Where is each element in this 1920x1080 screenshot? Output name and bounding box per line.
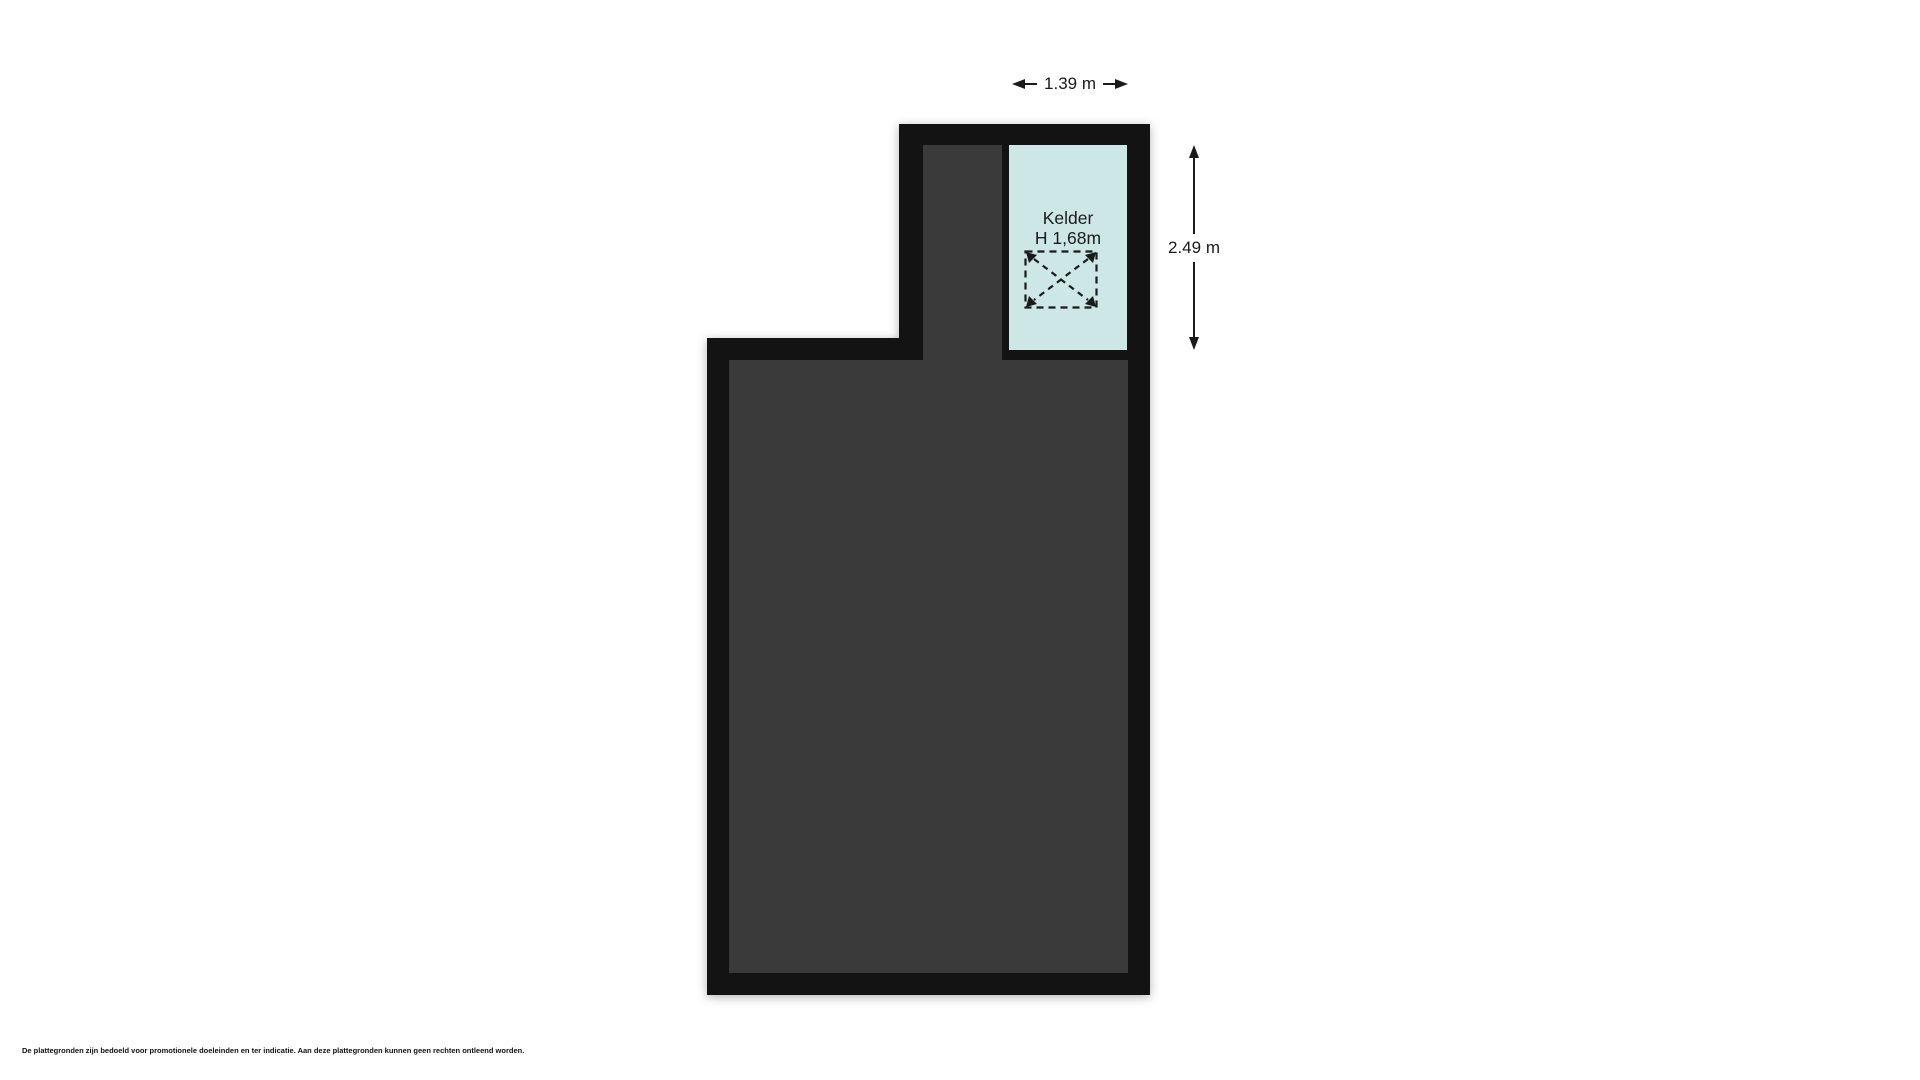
room-label-group: Kelder H 1,68m <box>1009 208 1127 248</box>
dimension-height-label: 2.49 m <box>1165 234 1223 262</box>
arrow-up-icon <box>1189 145 1199 158</box>
floorplan-canvas: Kelder H 1,68m 1.39 m 2.49 m De plattegr <box>0 0 1920 1080</box>
dimension-width-label: 1.39 m <box>1037 76 1103 92</box>
kelder-room: Kelder H 1,68m <box>1009 145 1127 350</box>
dimension-width-top: 1.39 m <box>1012 76 1128 92</box>
dimension-line-right <box>1103 83 1115 85</box>
arrow-down-icon <box>1189 337 1199 350</box>
arrow-right-icon <box>1115 79 1128 89</box>
upper-interior-strip <box>923 145 1002 365</box>
arrow-left-icon <box>1012 79 1025 89</box>
floorplan: Kelder H 1,68m <box>0 0 1920 1080</box>
dimension-height-right: 2.49 m <box>1184 145 1204 350</box>
room-height-label: H 1,68m <box>1009 228 1127 248</box>
void-cross-icon <box>1024 250 1098 309</box>
main-interior-area <box>729 360 1128 973</box>
room-name-label: Kelder <box>1009 208 1127 228</box>
disclaimer-text: De plattegronden zijn bedoeld voor promo… <box>22 1046 524 1056</box>
dimension-line-left <box>1025 83 1037 85</box>
